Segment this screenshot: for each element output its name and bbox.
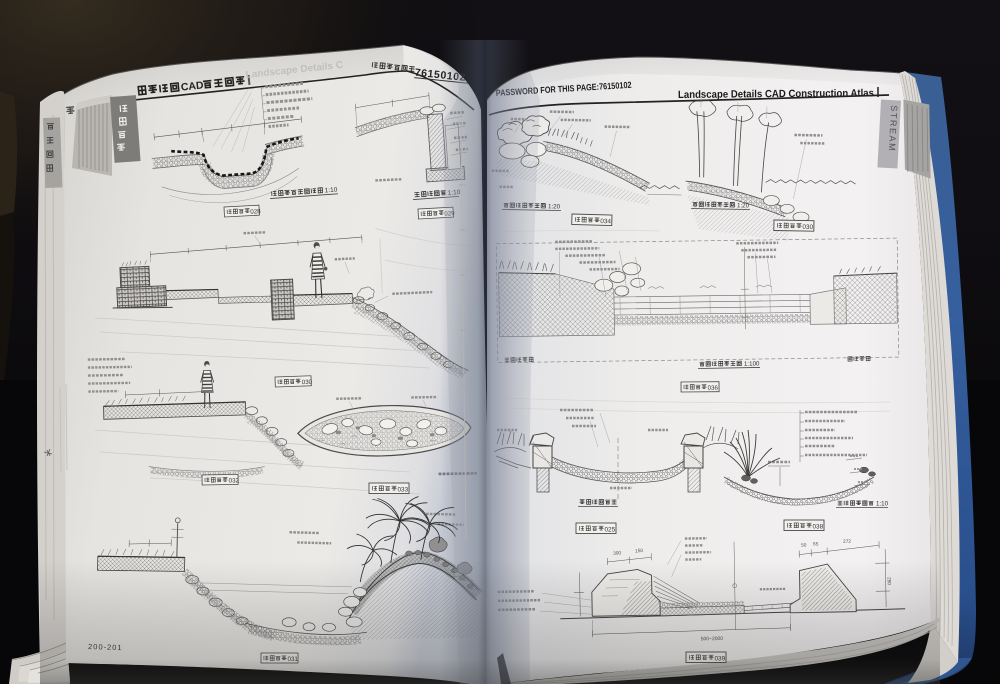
svg-text:1:20: 1:20 — [737, 202, 750, 209]
svg-text:1:20: 1:20 — [548, 203, 561, 210]
svg-text:036: 036 — [708, 385, 719, 392]
svg-text:030: 030 — [302, 379, 313, 386]
svg-text:1:10: 1:10 — [324, 187, 337, 195]
svg-text:1:100: 1:100 — [744, 360, 760, 367]
svg-text:038: 038 — [813, 523, 824, 530]
svg-text:150: 150 — [635, 548, 644, 555]
svg-text:025: 025 — [605, 526, 616, 533]
svg-text:272: 272 — [843, 539, 851, 545]
svg-text:300: 300 — [613, 550, 622, 557]
svg-text:032: 032 — [229, 477, 240, 484]
svg-text:1:10: 1:10 — [876, 501, 889, 508]
svg-text:65: 65 — [813, 541, 819, 547]
svg-text:028: 028 — [250, 208, 261, 216]
svg-text:033: 033 — [398, 486, 409, 493]
svg-text:030: 030 — [802, 224, 813, 231]
svg-text:50: 50 — [801, 542, 807, 548]
svg-text:034: 034 — [600, 218, 611, 225]
